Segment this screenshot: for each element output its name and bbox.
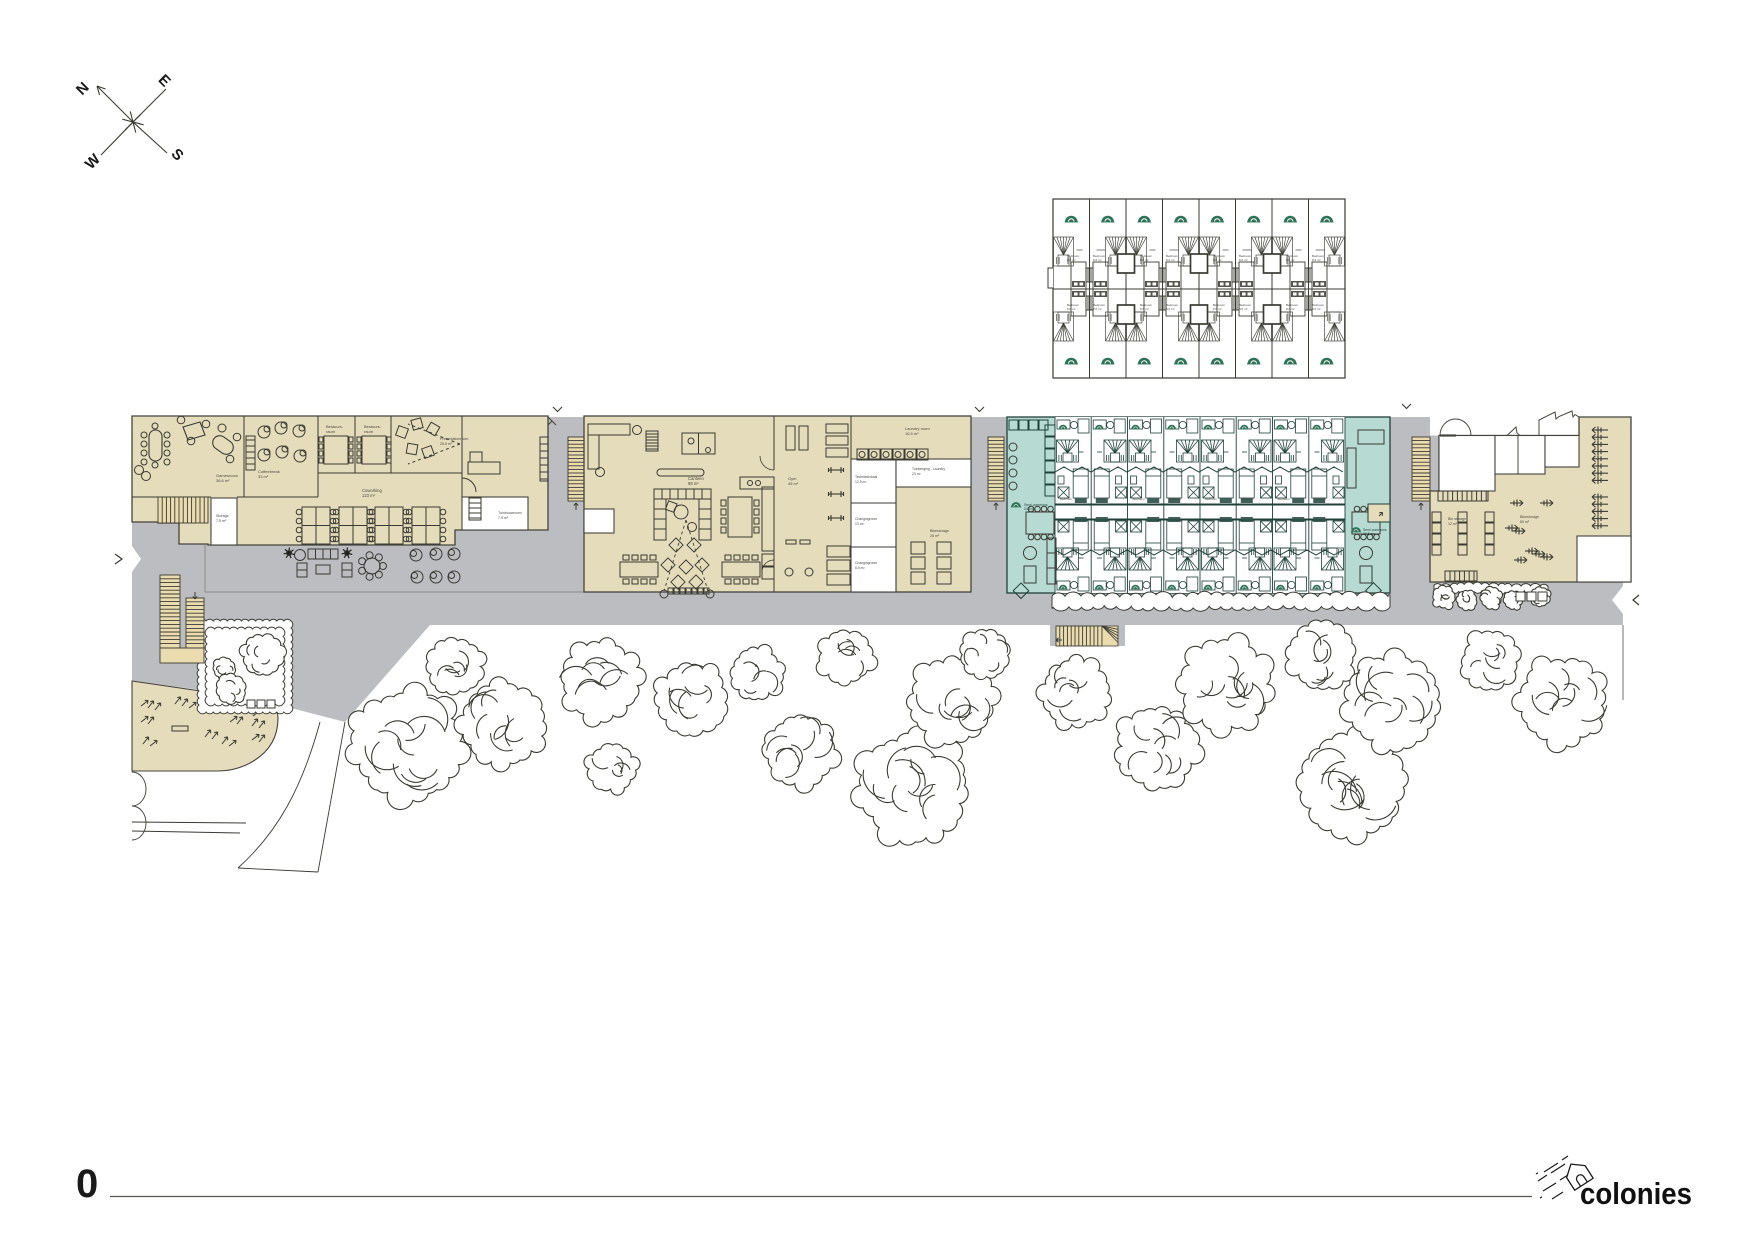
svg-text:raum: raum bbox=[326, 429, 336, 434]
svg-text:Bedroom: Bedroom bbox=[1314, 497, 1327, 501]
svg-text:8.6 m²: 8.6 m² bbox=[1213, 307, 1222, 311]
svg-text:8.6 m²: 8.6 m² bbox=[1166, 307, 1175, 311]
svg-text:Bedroom: Bedroom bbox=[1096, 497, 1109, 501]
svg-text:Bedroom: Bedroom bbox=[1205, 497, 1218, 501]
svg-text:13 m²: 13 m² bbox=[855, 522, 865, 526]
svg-text:Bikestorage: Bikestorage bbox=[1520, 515, 1539, 519]
svg-text:Changingroom: Changingroom bbox=[855, 561, 877, 565]
svg-text:25.8 m²: 25.8 m² bbox=[440, 442, 453, 446]
svg-text:25 m²: 25 m² bbox=[930, 534, 940, 538]
svg-text:8.6 m²: 8.6 m² bbox=[1067, 258, 1076, 262]
svg-text:Bedroom: Bedroom bbox=[1241, 497, 1254, 501]
svg-text:Changingroom: Changingroom bbox=[855, 517, 877, 521]
svg-text:Tuinbouwroom: Tuinbouwroom bbox=[498, 511, 522, 515]
svg-text:Presentationroom: Presentationroom bbox=[440, 437, 468, 441]
svg-text:6.5 m²: 6.5 m² bbox=[855, 566, 865, 570]
svg-text:Bikestorage: Bikestorage bbox=[930, 529, 949, 533]
svg-text:Tuinberging - Laundry: Tuinberging - Laundry bbox=[912, 467, 945, 471]
svg-text:8.6 m²: 8.6 m² bbox=[1286, 258, 1295, 262]
svg-text:8.6 m²: 8.6 m² bbox=[1093, 307, 1102, 311]
svg-text:8.6 m²: 8.6 m² bbox=[1140, 258, 1149, 262]
svg-text:8.6 m²: 8.6 m² bbox=[1286, 307, 1295, 311]
svg-text:45 m²: 45 m² bbox=[788, 481, 799, 486]
svg-text:raum: raum bbox=[364, 429, 374, 434]
svg-text:8.6 m²: 8.6 m² bbox=[1067, 307, 1076, 311]
svg-text:Storage: Storage bbox=[216, 514, 229, 518]
svg-text:0: 0 bbox=[76, 1162, 98, 1206]
svg-text:98 m²: 98 m² bbox=[688, 481, 699, 486]
svg-text:38.6 m²: 38.6 m² bbox=[216, 478, 230, 483]
svg-text:Bedroom: Bedroom bbox=[1060, 497, 1073, 501]
svg-text:8.6 m²: 8.6 m² bbox=[1140, 307, 1149, 311]
svg-text:Bedroom: Bedroom bbox=[1169, 497, 1182, 501]
svg-text:colonies: colonies bbox=[1580, 1176, 1692, 1211]
svg-text:16.5 m²: 16.5 m² bbox=[905, 431, 919, 436]
svg-text:12 m²: 12 m² bbox=[1448, 522, 1458, 526]
svg-text:8.6 m²: 8.6 m² bbox=[1312, 258, 1321, 262]
svg-text:Bin storage: Bin storage bbox=[1448, 517, 1466, 521]
svg-text:8.6 m²: 8.6 m² bbox=[1239, 307, 1248, 311]
svg-text:123 m²: 123 m² bbox=[362, 493, 376, 498]
svg-text:8.6 m²: 8.6 m² bbox=[1166, 258, 1175, 262]
svg-text:8.6 m²: 8.6 m² bbox=[1093, 258, 1102, 262]
svg-text:20.5 m²: 20.5 m² bbox=[1363, 532, 1375, 536]
svg-text:8.6 m²: 8.6 m² bbox=[1213, 258, 1222, 262]
svg-text:Bedroom: Bedroom bbox=[1133, 497, 1146, 501]
svg-text:12.5 m²: 12.5 m² bbox=[855, 480, 867, 484]
svg-text:8.6 m²: 8.6 m² bbox=[1312, 307, 1321, 311]
svg-text:60 m²: 60 m² bbox=[1520, 520, 1530, 524]
svg-text:Technieklokaal: Technieklokaal bbox=[855, 475, 877, 479]
svg-text:Bedroom: Bedroom bbox=[1278, 497, 1291, 501]
svg-text:23 m²: 23 m² bbox=[912, 472, 922, 476]
svg-text:24.5 m²: 24.5 m² bbox=[1024, 507, 1036, 511]
svg-text:8.6 m²: 8.6 m² bbox=[1239, 258, 1248, 262]
svg-text:7.9 m²: 7.9 m² bbox=[498, 516, 509, 520]
svg-text:7.5 m²: 7.5 m² bbox=[216, 519, 227, 523]
svg-text:33 m²: 33 m² bbox=[258, 474, 269, 479]
